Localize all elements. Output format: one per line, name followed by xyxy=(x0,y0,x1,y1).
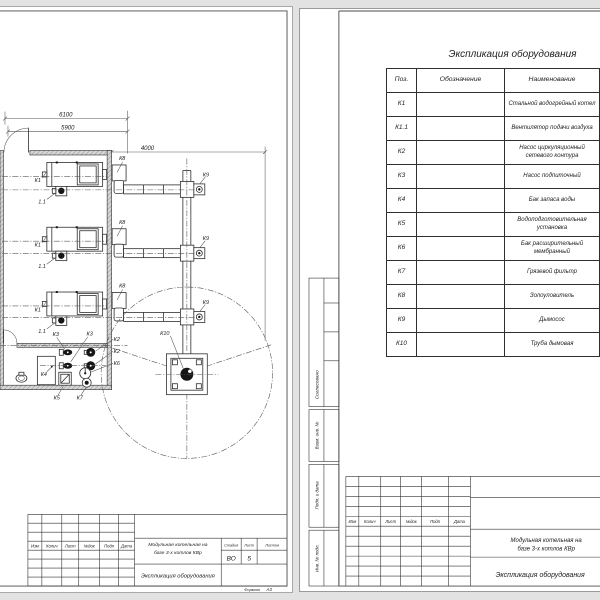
boiler-1-label: К1 xyxy=(35,178,41,184)
table-row: К4 Бак запаса воды xyxy=(387,189,600,213)
partition-door xyxy=(3,329,16,343)
water-tank-label: К4 xyxy=(41,372,47,378)
ash-collector-2-label: К8 xyxy=(119,220,126,226)
row-pos: К5 xyxy=(387,213,417,237)
flue-row-1: К8 К9 xyxy=(112,156,209,197)
sheet-plan: 6100 5900 4000 xyxy=(0,6,293,593)
smoke-exhauster-3-label: К9 xyxy=(203,300,209,306)
rev-col-kolich: Колич xyxy=(46,544,58,549)
col-header-designation: Обозначение xyxy=(417,69,505,93)
table-row: К1.1 Вентилятор подачи воздуха xyxy=(387,117,600,141)
fan-3-label: 1.1 xyxy=(38,329,46,335)
dimension-6100: 6100 xyxy=(3,111,130,154)
row-designation xyxy=(417,141,505,165)
stamp-sign-date: Подп. и дата xyxy=(314,481,319,509)
col-header-pos: Поз. xyxy=(387,69,417,93)
rev-col-podp: Подп xyxy=(104,544,115,549)
row-pos: К1 xyxy=(387,93,417,117)
row-designation xyxy=(417,93,505,117)
dim-5900-label: 5900 xyxy=(61,126,75,132)
dim-6100-label: 6100 xyxy=(59,113,73,119)
row-pos: К7 xyxy=(387,261,417,285)
stage-label: Стадия xyxy=(224,544,238,548)
table-row: К6 Бак расширительный мембранный xyxy=(387,237,600,261)
boiler-1: К1 1.1 xyxy=(35,161,107,205)
rev-col-list: Лист xyxy=(384,519,396,524)
row-name: Труба дымовая xyxy=(505,333,600,357)
row-name: Золоуловитель xyxy=(505,285,600,309)
feed-pump-2-label: К3 xyxy=(87,331,93,337)
row-pos: К1.1 xyxy=(387,117,417,141)
sheet-equipment-list: Согласовано Взам. инв. № Подп. и дата Ин… xyxy=(299,8,600,592)
dimension-5900: 5900 xyxy=(6,126,130,137)
project-name-line2: базе 3-х котлов КВр xyxy=(154,550,202,556)
boiler-2-label: К1 xyxy=(35,243,41,249)
row-name: Насос подпиточный xyxy=(505,165,600,189)
row-pos: К2 xyxy=(387,141,417,165)
expansion-tank-label: К6 xyxy=(114,361,121,367)
row-name: Насос циркуляционный сетевого контура xyxy=(505,141,600,165)
fan-2-label: 1.1 xyxy=(38,264,46,270)
ash-collector-1-label: К8 xyxy=(119,156,126,162)
row-designation xyxy=(417,261,505,285)
ash-collector-3-label: К8 xyxy=(119,284,126,290)
row-pos: К9 xyxy=(387,309,417,333)
stamp-agreed: Согласовано xyxy=(314,370,320,399)
format-label: Формат xyxy=(244,587,260,592)
drawing-viewer: 6100 5900 4000 xyxy=(0,0,600,600)
project-name-line1: Модульная котельная на xyxy=(148,542,207,548)
row-pos: К4 xyxy=(387,189,417,213)
smoke-exhauster-1-label: К9 xyxy=(203,172,209,178)
feed-pump-1-label: К3 xyxy=(53,332,59,338)
flue-row-2: К8 К9 xyxy=(112,220,209,261)
row-designation xyxy=(417,117,505,141)
circ-pump-2-label: К2 xyxy=(114,349,120,355)
rev-col-ndok: №док xyxy=(406,519,418,524)
col-header-name: Наименование xyxy=(505,69,600,93)
boiler-3-label: К1 xyxy=(35,307,41,313)
doc-name-right: Экспликация оборудования xyxy=(496,571,585,579)
pump-room: К4 К3 К3 К2 К2 К6 xyxy=(16,331,121,401)
table-row: К5 Водоподготовительная установка xyxy=(387,213,600,237)
table-row: К2 Насос циркуляционный сетевого контура xyxy=(387,141,600,165)
sheet-label: Лист xyxy=(243,544,254,548)
format-value: А3 xyxy=(265,587,272,592)
row-pos: К10 xyxy=(387,333,417,357)
row-designation xyxy=(417,309,505,333)
row-name: Бак расширительный мембранный xyxy=(505,237,600,261)
project-name-line1: Модульная котельная на xyxy=(511,538,583,544)
row-designation xyxy=(417,213,505,237)
table-header-row: Поз. Обозначение Наименование xyxy=(387,69,600,93)
row-designation xyxy=(417,237,505,261)
dim-4000-label: 4000 xyxy=(141,146,155,152)
row-name: Грязевой фильтр xyxy=(505,261,600,285)
table-row: К9 Дымосос xyxy=(387,309,600,333)
filter-label: К7 xyxy=(77,396,84,402)
table-row: К10 Труба дымовая xyxy=(387,333,600,357)
row-name: Водоподготовительная установка xyxy=(505,213,600,237)
rev-col-data: Дата xyxy=(453,519,466,524)
side-stamp: Согласовано Взам. инв. № Подп. и дата Ин… xyxy=(309,278,339,586)
row-name: Вентилятор подачи воздуха xyxy=(505,117,600,141)
title-block-left: Изм Колич Лист №док Подп Дата Модульная … xyxy=(28,514,287,592)
title-block-right: Изм Колич Лист №док Подп Дата Модульная … xyxy=(346,476,600,586)
table-row: К1 Стальной водогрейный котел xyxy=(387,93,600,117)
rev-col-izm: Изм xyxy=(348,519,356,524)
project-name-line2: базе 3-х котлов КВр xyxy=(517,547,575,553)
flue-row-3: К8 К9 xyxy=(112,284,209,325)
table-row: К3 Насос подпиточный xyxy=(387,165,600,189)
plan-drawing: 6100 5900 4000 xyxy=(0,7,292,592)
doc-name-left: Экспликация оборудования xyxy=(141,574,215,580)
equipment-table-title: Экспликация оборудования xyxy=(406,49,600,60)
row-pos: К8 xyxy=(387,285,417,309)
rev-col-kolich: Колич xyxy=(364,519,376,524)
smoke-exhauster-2-label: К9 xyxy=(203,236,209,242)
row-designation xyxy=(417,189,505,213)
fan-1-label: 1.1 xyxy=(38,199,46,205)
row-pos: К6 xyxy=(387,237,417,261)
rev-col-ndok: №док xyxy=(84,544,96,549)
stage-value: ВО xyxy=(227,556,236,563)
boiler-2: К1 1.1 xyxy=(35,226,107,270)
row-name: Стальной водогрейный котел xyxy=(505,93,600,117)
row-name: Дымосос xyxy=(505,309,600,333)
chimney-label: К10 xyxy=(160,331,169,337)
rev-col-podp: Подп xyxy=(430,519,441,524)
stamp-subst-inv: Взам. инв. № xyxy=(314,422,319,450)
row-name: Бак запаса воды xyxy=(505,189,600,213)
table-row: К8 Золоуловитель xyxy=(387,285,600,309)
row-pos: К3 xyxy=(387,165,417,189)
row-designation xyxy=(417,285,505,309)
circ-pump-1-label: К2 xyxy=(114,337,120,343)
table-row: К7 Грязевой фильтр xyxy=(387,261,600,285)
water-treatment-label: К5 xyxy=(54,396,61,402)
rev-col-izm: Изм xyxy=(31,544,39,549)
boiler-3: К1 1.1 xyxy=(35,291,107,335)
row-designation xyxy=(417,333,505,357)
rev-col-data: Дата xyxy=(120,544,133,549)
equipment-table: Поз. Обозначение Наименование К1 Стально… xyxy=(386,68,600,357)
row-designation xyxy=(417,165,505,189)
stamp-inv-orig: Инв. № подл. xyxy=(314,544,319,572)
sheets-label: Листов xyxy=(264,544,279,548)
sheet-value: 5 xyxy=(247,556,251,563)
rev-col-list: Лист xyxy=(64,544,76,549)
